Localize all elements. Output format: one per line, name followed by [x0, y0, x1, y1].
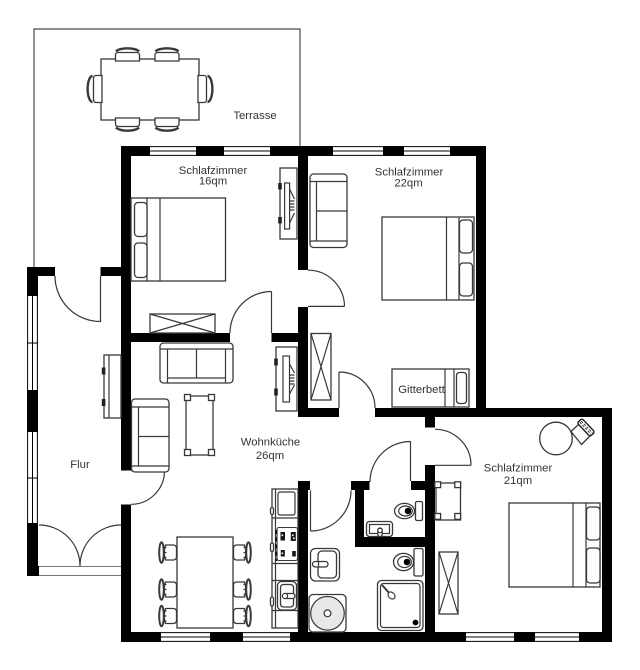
svg-text:Gitterbett: Gitterbett — [398, 384, 445, 396]
svg-text:Schlafzimmer: Schlafzimmer — [484, 463, 553, 475]
svg-text:Flur: Flur — [70, 459, 90, 471]
svg-text:Wohnküche: Wohnküche — [241, 437, 300, 449]
svg-text:21qm: 21qm — [504, 475, 532, 487]
svg-text:22qm: 22qm — [394, 178, 422, 190]
svg-text:26qm: 26qm — [256, 450, 284, 462]
svg-text:Terrasse: Terrasse — [233, 110, 276, 122]
svg-text:16qm: 16qm — [199, 176, 227, 188]
